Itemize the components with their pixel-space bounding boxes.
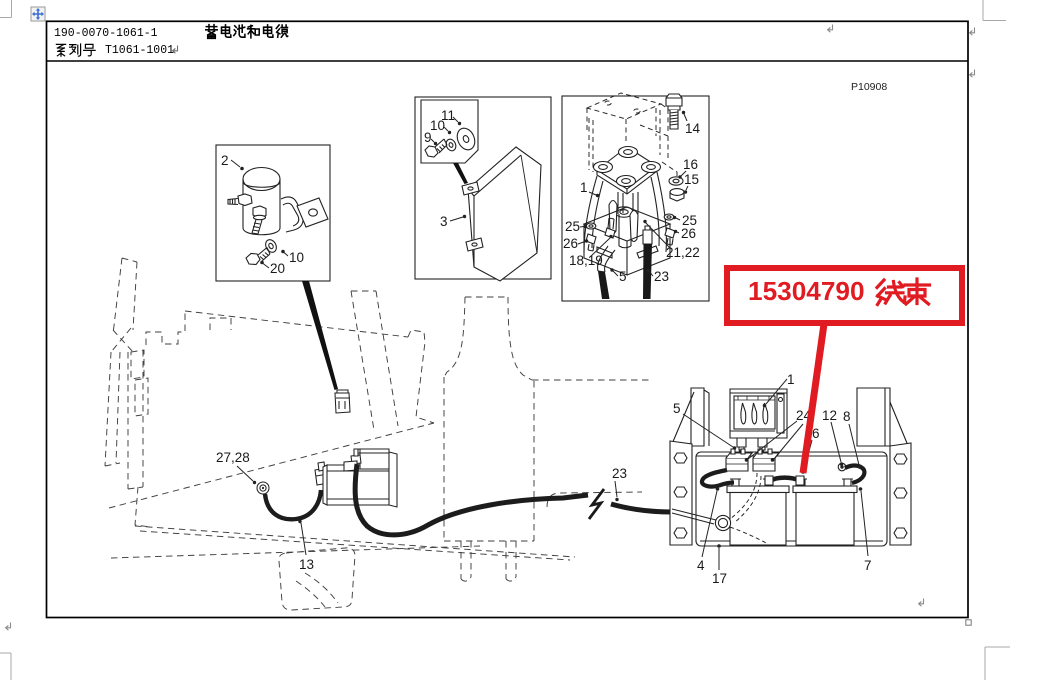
svg-text:15: 15 xyxy=(684,172,699,187)
svg-text:15304790: 15304790 xyxy=(748,276,865,306)
svg-text:17: 17 xyxy=(712,571,727,586)
svg-text:1: 1 xyxy=(580,180,588,195)
svg-text:7: 7 xyxy=(864,558,872,573)
svg-text:23: 23 xyxy=(612,466,627,481)
svg-text:190-0070-1061-1: 190-0070-1061-1 xyxy=(54,27,158,40)
svg-text:6: 6 xyxy=(812,426,820,441)
svg-text:2: 2 xyxy=(221,153,229,168)
svg-text:21,22: 21,22 xyxy=(666,245,700,260)
svg-text:20: 20 xyxy=(270,261,285,276)
svg-text:10: 10 xyxy=(430,118,445,133)
svg-text:8: 8 xyxy=(843,409,851,424)
svg-text:26: 26 xyxy=(563,236,578,251)
svg-text:T1061-1001: T1061-1001 xyxy=(105,44,174,57)
svg-text:5: 5 xyxy=(619,269,627,284)
svg-text:3: 3 xyxy=(440,214,448,229)
svg-text:16: 16 xyxy=(683,157,698,172)
svg-text:25: 25 xyxy=(565,219,580,234)
svg-text:10: 10 xyxy=(289,250,304,265)
svg-text:5: 5 xyxy=(673,401,681,416)
svg-text:14: 14 xyxy=(685,121,701,136)
svg-text:26: 26 xyxy=(681,226,696,241)
svg-text:P10908: P10908 xyxy=(851,81,887,93)
svg-text:4: 4 xyxy=(697,558,705,573)
svg-text:1: 1 xyxy=(787,372,795,387)
svg-text:13: 13 xyxy=(299,557,314,572)
svg-text:27,28: 27,28 xyxy=(216,450,250,465)
svg-text:23: 23 xyxy=(654,269,669,284)
svg-text:12: 12 xyxy=(822,408,837,423)
svg-text:9: 9 xyxy=(424,130,432,145)
